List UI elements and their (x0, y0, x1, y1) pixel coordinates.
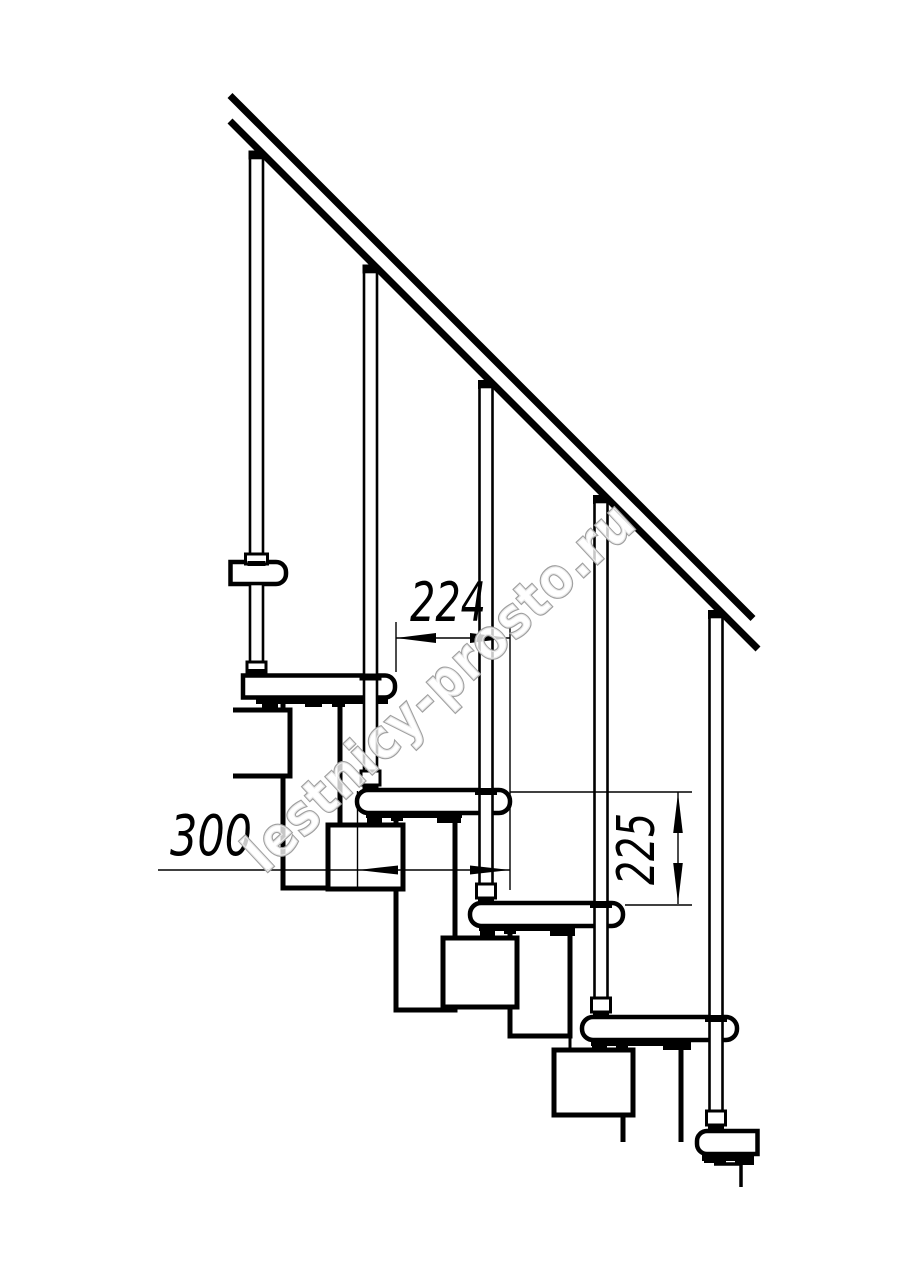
baluster-shaft (364, 272, 377, 772)
fastening-tab (592, 1039, 607, 1050)
arrowhead-up (673, 793, 683, 833)
fastening-tab (367, 812, 382, 823)
fastening-tab (391, 812, 403, 821)
fastening-tab (616, 1039, 628, 1048)
fastening-tab (663, 1039, 691, 1050)
arrowhead-left (396, 633, 436, 643)
baluster-tread-tab (475, 788, 497, 795)
staircase-technical-drawing: 224 300 225 lestnicy-prosto.ru (0, 0, 914, 1280)
arrowhead-down (673, 863, 683, 903)
fastening-tab (332, 697, 345, 707)
fastening-tab (704, 1153, 726, 1163)
baluster (705, 610, 727, 1131)
baluster (246, 151, 268, 677)
module-platform (443, 938, 517, 1007)
baluster-collar (707, 1111, 726, 1125)
fastening-tab (262, 697, 278, 708)
baluster-base (249, 669, 265, 676)
module-platform (328, 825, 403, 889)
tread (697, 1131, 758, 1154)
baluster-shaft (250, 584, 263, 663)
fastening-tab (305, 697, 322, 707)
handrail (230, 96, 758, 650)
fastening-tab (480, 925, 495, 936)
drawing-cut-line (714, 1164, 741, 1187)
fastening-tab (504, 925, 516, 934)
staircase-drawing-page: 224 300 225 lestnicy-prosto.ru (0, 0, 914, 1280)
baluster-shaft (710, 617, 723, 1113)
module-platform (554, 1050, 633, 1115)
baluster-base (593, 1011, 609, 1018)
baluster-collar (477, 884, 496, 898)
baluster-tread-tab (705, 1015, 727, 1022)
baluster-base (708, 1125, 724, 1131)
baluster-base (248, 561, 266, 566)
baluster-tread-tab (360, 674, 382, 681)
baluster-tread-tab (590, 901, 612, 908)
baluster-base (478, 897, 494, 904)
baluster-collar (592, 998, 611, 1012)
fastening-tab (550, 925, 575, 936)
fastening-tab (437, 812, 461, 823)
dimension-225-label: 225 (607, 813, 667, 885)
baluster-shaft (250, 158, 263, 556)
module-platform (233, 710, 290, 776)
